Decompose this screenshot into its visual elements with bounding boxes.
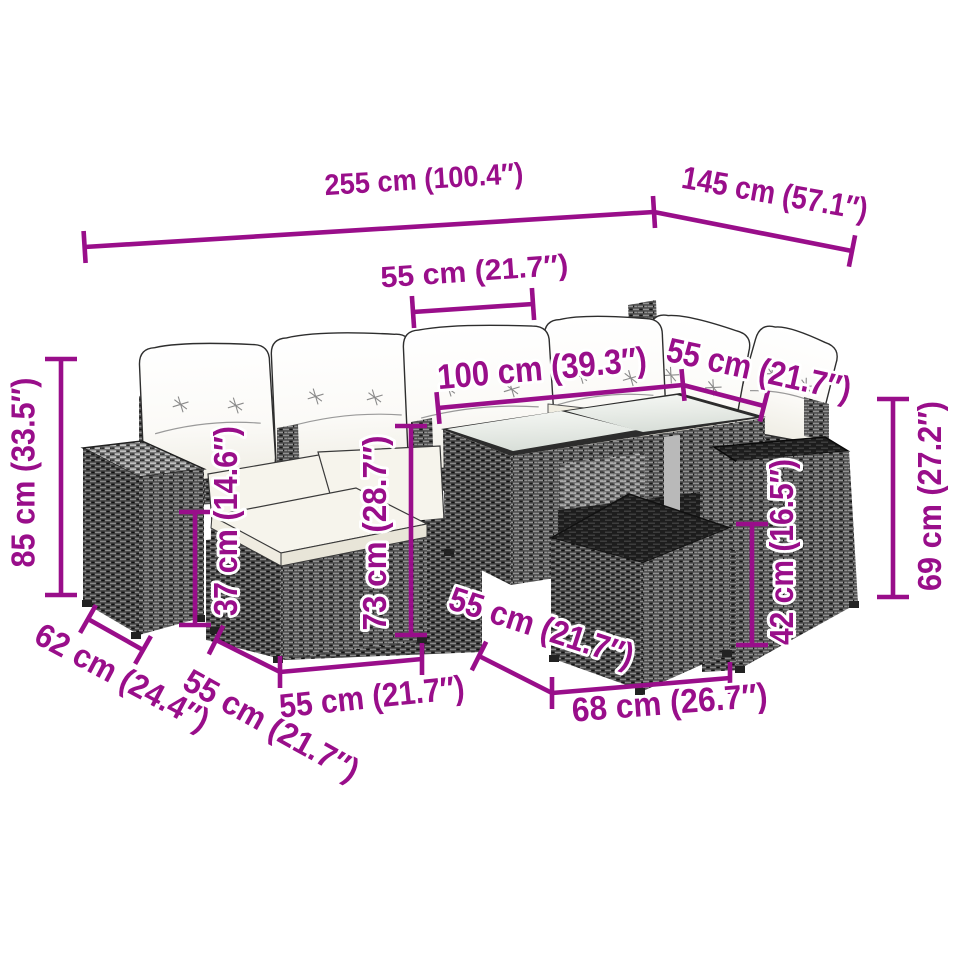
svg-text:85 cm (33.5″): 85 cm (33.5″) (5, 378, 42, 568)
svg-text:73 cm (28.7″): 73 cm (28.7″) (356, 436, 393, 631)
svg-text:37 cm (14.6″): 37 cm (14.6″) (207, 426, 244, 616)
svg-text:69 cm (27.2″): 69 cm (27.2″) (911, 401, 948, 591)
svg-text:42 cm (16.5″): 42 cm (16.5″) (763, 459, 800, 645)
